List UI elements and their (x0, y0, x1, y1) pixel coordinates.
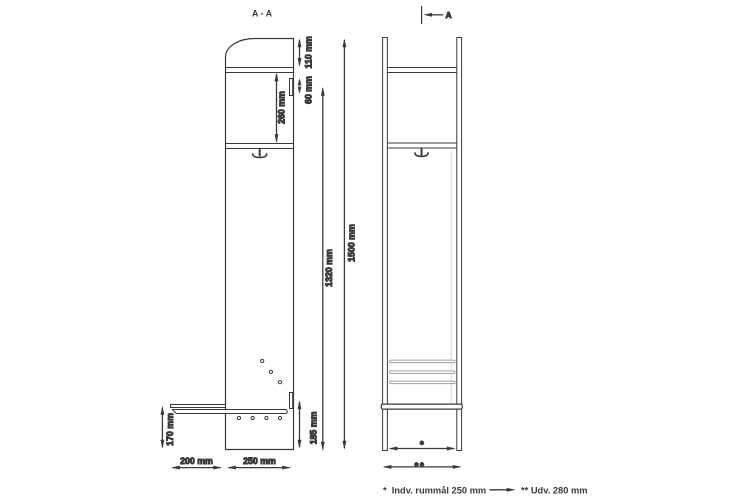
svg-text:185 mm: 185 mm (309, 411, 319, 444)
svg-text:1320 mm: 1320 mm (324, 249, 334, 287)
svg-text:* Indv. rummål 250 mm: * Indv. rummål 250 mm (383, 485, 486, 495)
svg-text:**: ** (415, 462, 426, 473)
svg-text:** Udv. 280 mm: ** Udv. 280 mm (521, 485, 588, 495)
svg-text:170 mm: 170 mm (165, 413, 175, 446)
svg-text:A: A (446, 10, 452, 20)
svg-text:*: * (420, 440, 424, 451)
svg-text:60 mm: 60 mm (303, 76, 313, 104)
svg-text:1500 mm: 1500 mm (346, 224, 356, 262)
svg-text:A - A: A - A (252, 9, 273, 19)
svg-text:260 mm: 260 mm (277, 91, 287, 124)
svg-text:110 mm: 110 mm (303, 36, 313, 68)
svg-text:250 mm: 250 mm (243, 456, 276, 466)
svg-text:200 mm: 200 mm (180, 456, 213, 466)
